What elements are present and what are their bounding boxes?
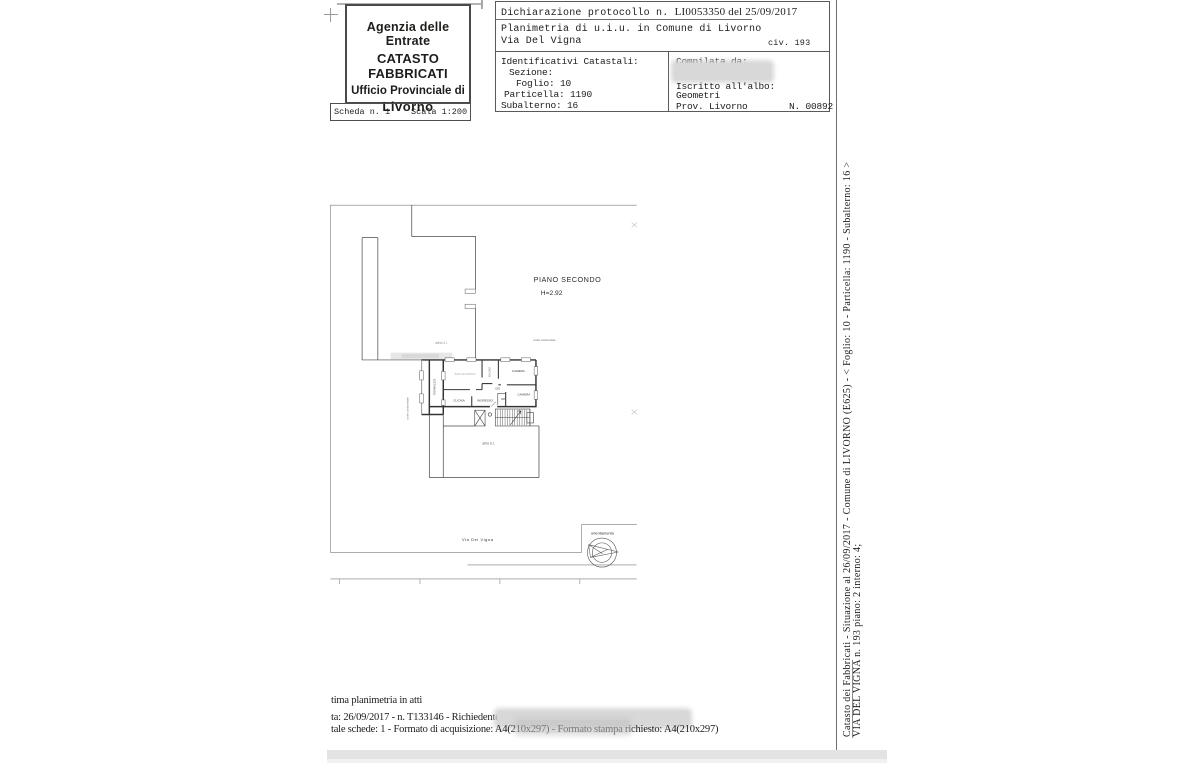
box-divider (496, 51, 829, 52)
room-label-rip: RIP (501, 398, 505, 401)
subalterno-field: Subalterno: 16 (501, 100, 578, 111)
civic-number: civ. 193 (768, 38, 810, 48)
protocol-prefix: Dichiarazione protocollo n. (501, 8, 668, 19)
agency-header-box: Agenzia delle Entrate CATASTO FABBRICATI… (345, 4, 471, 104)
upper-unit-walls (362, 205, 475, 359)
catasto-title: CATASTO FABBRICATI (347, 51, 469, 81)
side-strip-line2: VIA DEL VIGNA n. 193 piano: 2 interno: 4… (853, 97, 863, 737)
identifiers-title: Identificativi Catastali: (501, 56, 639, 67)
registration-number: N. 00892 (789, 101, 833, 112)
protocol-underline (496, 19, 752, 20)
courtyard-label-left: cortile condominiale (407, 397, 410, 420)
lower-unit-walls (429, 414, 539, 477)
sezione-field: Sezione: (509, 67, 553, 78)
dimension-tick-icon (632, 222, 637, 414)
sheet-right-border (836, 0, 837, 754)
declaration-box: Dichiarazione protocollo n. LI0053350 de… (495, 1, 830, 112)
protocol-number: LI0053350 del 25/09/2017 (675, 6, 798, 18)
protocol-line: Dichiarazione protocollo n. LI0053350 de… (501, 6, 797, 19)
room-label-camera-top: CAMERA (512, 369, 525, 373)
room-label-dis: DIS (496, 387, 501, 391)
scan-smudge (517, 720, 629, 733)
street-line: Via Del Vigna (501, 36, 582, 47)
room-label-soggiorno: SOGGIORNO (455, 372, 477, 376)
room-label-terrazzo: TERRAZZO (432, 378, 436, 395)
room-label-cucina: CUCINA (453, 399, 465, 403)
planimetria-line: Planimetria di u.i.u. in Comune di Livor… (501, 24, 761, 35)
box-divider (668, 51, 669, 111)
drawing-frame (330, 205, 637, 579)
footer-line-richiedente: ta: 26/09/2017 - n. T133146 - Richiedent… (331, 712, 502, 723)
street-name-label: Via Del Vigna (462, 537, 494, 542)
side-reference-strip: Catasto dei Fabbricati - Situazione al 2… (843, 97, 863, 737)
orientation-label: orientamento (591, 530, 615, 535)
footer-line-planimetria: tima planimetria in atti (331, 695, 422, 706)
door-recess (465, 289, 475, 293)
courtyard-label-right: cortile condominiale (533, 339, 556, 342)
frame-ticks (339, 579, 579, 584)
albo-value: Geometri (676, 90, 720, 101)
foglio-field: Foglio: 10 (516, 78, 571, 89)
province-label: Prov. Livorno (676, 101, 748, 112)
floor-title: PIANO SECONDO (534, 275, 602, 284)
room-label-bagno: BAGNO (488, 367, 492, 377)
office-label: Ufficio Provinciale di (347, 85, 469, 97)
scan-edge-band (327, 750, 887, 759)
room-label-ingresso: INGRESSO (477, 399, 494, 403)
door-recess (465, 304, 475, 308)
scale-label: Scala 1:200 (411, 107, 467, 117)
floor-height: H=2.92 (541, 290, 563, 297)
compass-icon (587, 538, 618, 567)
agency-name: Agenzia delle Entrate (347, 20, 469, 48)
other-unit-label-bottom: altra U.I. (482, 442, 495, 446)
scan-corner-tick (481, 0, 483, 9)
scanned-cadastral-document: Agenzia delle Entrate CATASTO FABBRICATI… (0, 0, 1200, 768)
other-unit-label-top: altra U.I. (435, 341, 448, 345)
floor-plan-drawing: PIANO SECONDO H=2.92 SOGGIORNO CUCINA IN… (330, 118, 837, 740)
sheet-number: Scheda n. 1 (334, 107, 390, 117)
stairwell (475, 402, 539, 426)
particella-field: Particella: 1190 (504, 89, 592, 100)
room-label-camera-bottom: CAMERA (517, 393, 530, 397)
registration-cross-icon (324, 14, 338, 15)
redacted-compiler-name (674, 63, 771, 80)
registration-cross-icon (330, 8, 331, 22)
scan-edge-band (327, 759, 887, 763)
apartment-outer-walls (421, 360, 535, 415)
scan-smudge (401, 354, 439, 358)
